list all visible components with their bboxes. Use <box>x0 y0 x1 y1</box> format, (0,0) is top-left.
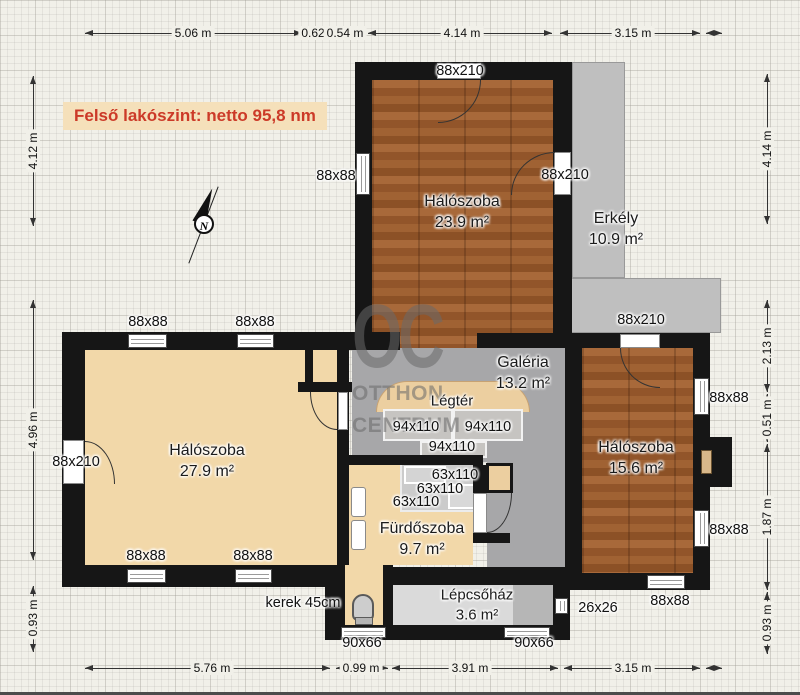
opening-label: 90x66 <box>514 635 554 651</box>
room-name: Erkély <box>589 209 643 230</box>
dimension-label: 0.93 m <box>26 597 40 640</box>
dimension-label: 0.51 m <box>760 397 774 440</box>
room-label-balcony: Erkély 10.9 m² <box>589 209 643 251</box>
wall <box>337 455 483 465</box>
dimension-label: 5.06 m <box>172 26 215 40</box>
window-88x88 <box>647 575 685 589</box>
opening-label: 88x88 <box>650 593 690 609</box>
shaft <box>486 463 513 493</box>
room-area: 3.6 m² <box>441 605 514 625</box>
fixture-base <box>355 617 373 625</box>
room-area: 10.9 m² <box>589 230 643 251</box>
wall <box>565 333 582 590</box>
opening-label: 88x88 <box>128 314 168 330</box>
wall <box>298 382 352 392</box>
opening-label: 88x88 <box>235 314 275 330</box>
room-label-bedroom-top: Hálószoba 23.9 m² <box>424 192 500 234</box>
room-area: 9.7 m² <box>380 540 465 561</box>
room-name: Hálószoba <box>169 441 245 462</box>
wall <box>383 567 565 585</box>
opening-label: 88x88 <box>126 548 166 564</box>
opening-label: 88x88 <box>709 390 749 406</box>
dimension-label: 4.12 m <box>26 130 40 173</box>
room-label-staircase: Lépcsőház 3.6 m² <box>441 586 514 625</box>
chimney <box>693 437 732 487</box>
opening-label: 94x110 <box>465 419 512 435</box>
room-name: Lépcsőház <box>441 586 514 606</box>
room-label-bedroom-left: Hálószoba 27.9 m² <box>169 441 245 483</box>
door-opening <box>620 334 660 348</box>
dimension-label: 2.13 m <box>760 325 774 368</box>
chimney-flue <box>701 450 712 474</box>
room-name: Galéria <box>496 353 550 374</box>
bath-fixture <box>351 520 366 550</box>
window-88x88 <box>694 510 709 547</box>
room-area: 13.2 m² <box>496 374 550 395</box>
compass-north-letter: N <box>194 214 214 234</box>
room-area: 15.6 m² <box>598 459 674 480</box>
dimension-label: 4.96 m <box>26 409 40 452</box>
floor-plan: OC OTTHON CENTRUM Hálószoba 23.9 m² Erké… <box>0 0 800 695</box>
watermark-monogram: OC <box>352 292 441 382</box>
opening-label: 26x26 <box>578 600 618 616</box>
opening-label: 88x210 <box>617 312 665 328</box>
bath-fixture <box>351 487 366 517</box>
door-opening <box>338 392 348 430</box>
opening-label: 63x110 <box>393 494 440 510</box>
window-88x88 <box>127 569 166 583</box>
wall <box>62 332 400 350</box>
opening-label: 88x210 <box>52 454 100 470</box>
dimension-label: 4.14 m <box>441 26 484 40</box>
window-88x88 <box>694 378 709 415</box>
room-name: Fürdőszoba <box>380 519 465 540</box>
opening-label: 88x88 <box>233 548 273 564</box>
opening-label: 88x88 <box>709 522 749 538</box>
opening-label: kerek 45cm <box>266 595 341 611</box>
room-label-airspace: Légtér <box>431 391 474 411</box>
dimension-label: 3.15 m <box>612 661 655 675</box>
dimension-label: 5.76 m <box>191 661 234 675</box>
window-26x26 <box>555 598 568 614</box>
room-area: 23.9 m² <box>424 213 500 234</box>
room-name: Hálószoba <box>424 192 500 213</box>
wall <box>62 565 345 587</box>
room-label-bathroom: Fürdőszoba 9.7 m² <box>380 519 465 561</box>
dimension-line <box>706 33 722 34</box>
dimension-label: 0.93 m <box>760 602 774 645</box>
dimension-label: 4.14 m <box>760 128 774 171</box>
dimension-label: 0.99 m <box>340 661 383 675</box>
dimension-label: 0.54 m <box>324 26 367 40</box>
dimension-label: 1.87 m <box>760 496 774 539</box>
window-88x88 <box>356 153 370 195</box>
room-name: Hálószoba <box>598 438 674 459</box>
wall <box>565 573 710 590</box>
opening-label: 94x110 <box>429 439 476 455</box>
page-title: Felső lakószint: netto 95,8 nm <box>63 102 327 130</box>
opening-label: 88x88 <box>316 168 356 184</box>
window-88x88 <box>237 334 274 348</box>
dimension-label: 3.91 m <box>449 661 492 675</box>
opening-label: 88x210 <box>541 167 589 183</box>
dimension-label: 3.15 m <box>612 26 655 40</box>
wall <box>553 62 572 333</box>
opening-label: 90x66 <box>342 635 382 651</box>
room-label-bedroom-right: Hálószoba 15.6 m² <box>598 438 674 480</box>
room-name: Légtér <box>431 391 474 411</box>
room-label-gallery: Galéria 13.2 m² <box>496 353 550 395</box>
window-88x88 <box>235 569 272 583</box>
window-88x88 <box>128 334 167 348</box>
dimension-line <box>706 668 722 669</box>
wall <box>482 533 510 543</box>
opening-label: 94x110 <box>393 419 440 435</box>
opening-label: 88x210 <box>436 63 484 79</box>
door-opening <box>473 493 487 533</box>
room-area: 27.9 m² <box>169 462 245 483</box>
floor-staircase-landing <box>513 585 553 625</box>
